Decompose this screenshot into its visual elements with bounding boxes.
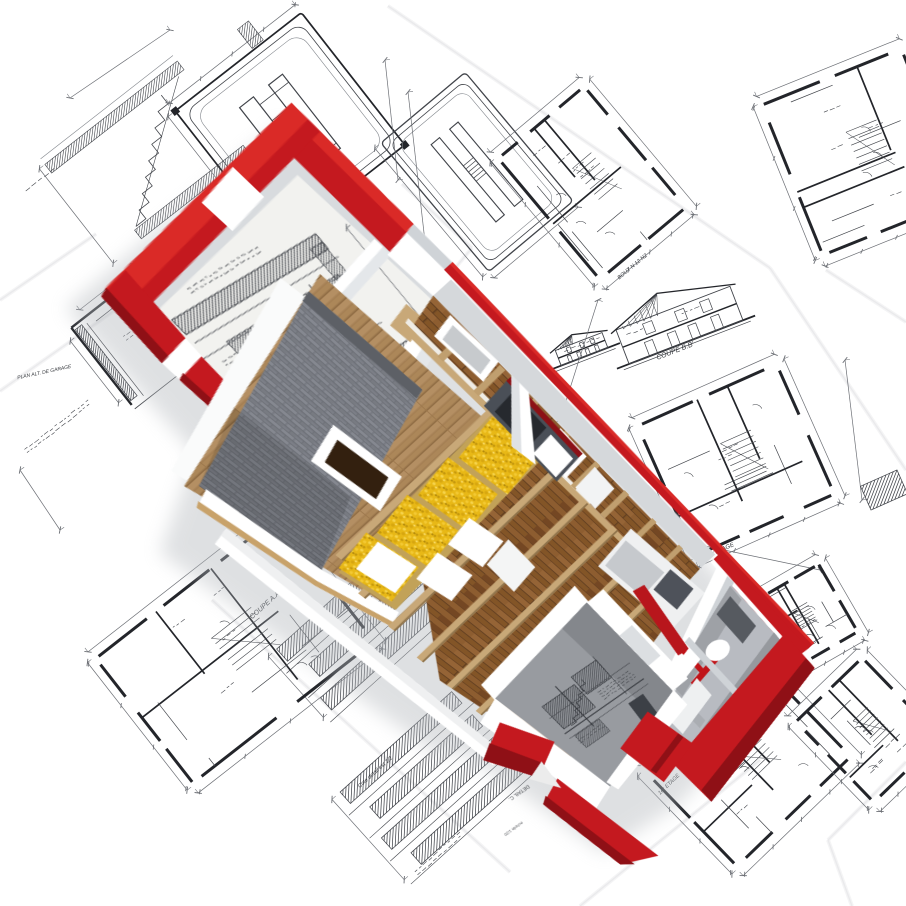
svg-text:DETAIL C.: DETAIL C. [507, 784, 531, 802]
svg-text:echelle 1/20: echelle 1/20 [503, 821, 525, 837]
